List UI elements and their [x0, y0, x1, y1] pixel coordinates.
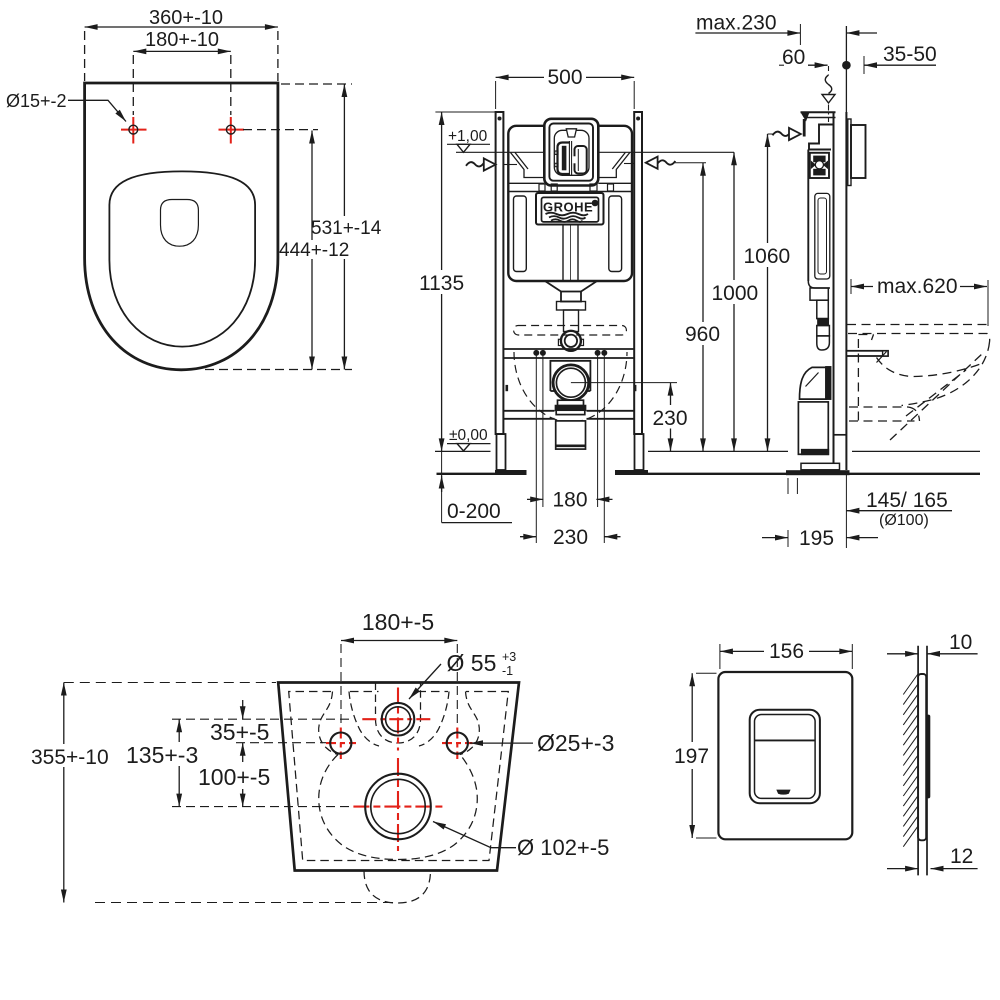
svg-text:(Ø100): (Ø100) — [879, 512, 929, 529]
svg-text:230: 230 — [553, 526, 588, 549]
svg-text:500: 500 — [547, 66, 582, 89]
svg-text:444+-12: 444+-12 — [279, 240, 349, 261]
svg-text:1000: 1000 — [712, 282, 759, 305]
svg-text:1060: 1060 — [744, 245, 791, 268]
svg-text:355+-10: 355+-10 — [31, 746, 109, 769]
svg-text:180: 180 — [552, 489, 587, 512]
svg-text:12: 12 — [950, 845, 973, 868]
svg-text:197: 197 — [674, 745, 709, 768]
svg-text:960: 960 — [685, 323, 720, 346]
svg-text:max.620: max.620 — [877, 275, 958, 298]
svg-text:180+-10: 180+-10 — [145, 29, 219, 51]
svg-text:360+-10: 360+-10 — [149, 7, 223, 29]
svg-text:145/ 165: 145/ 165 — [866, 489, 948, 512]
svg-text:35-50: 35-50 — [883, 43, 937, 66]
svg-text:156: 156 — [769, 640, 804, 663]
svg-text:0-200: 0-200 — [447, 500, 501, 523]
svg-text:60: 60 — [782, 46, 805, 69]
svg-text:Ø 55: Ø 55 — [447, 650, 497, 676]
svg-text:+3: +3 — [502, 650, 516, 664]
svg-text:230: 230 — [653, 407, 688, 430]
svg-text:180+-5: 180+-5 — [362, 609, 434, 635]
svg-text:135+-3: 135+-3 — [126, 742, 198, 768]
svg-text:Ø25+-3: Ø25+-3 — [537, 730, 614, 756]
svg-text:195: 195 — [799, 527, 834, 550]
svg-text:Ø15+-2: Ø15+-2 — [6, 91, 67, 111]
svg-text:±0,00: ±0,00 — [449, 427, 488, 444]
svg-text:531+-14: 531+-14 — [311, 218, 382, 239]
svg-text:-1: -1 — [502, 664, 513, 678]
svg-text:1135: 1135 — [419, 272, 464, 295]
svg-text:+1,00: +1,00 — [448, 128, 488, 145]
svg-text:35+-5: 35+-5 — [210, 719, 269, 745]
svg-text:max.230: max.230 — [696, 12, 777, 35]
svg-text:Ø 102+-5: Ø 102+-5 — [517, 835, 609, 860]
svg-text:100+-5: 100+-5 — [198, 764, 270, 790]
svg-text:10: 10 — [949, 631, 972, 654]
